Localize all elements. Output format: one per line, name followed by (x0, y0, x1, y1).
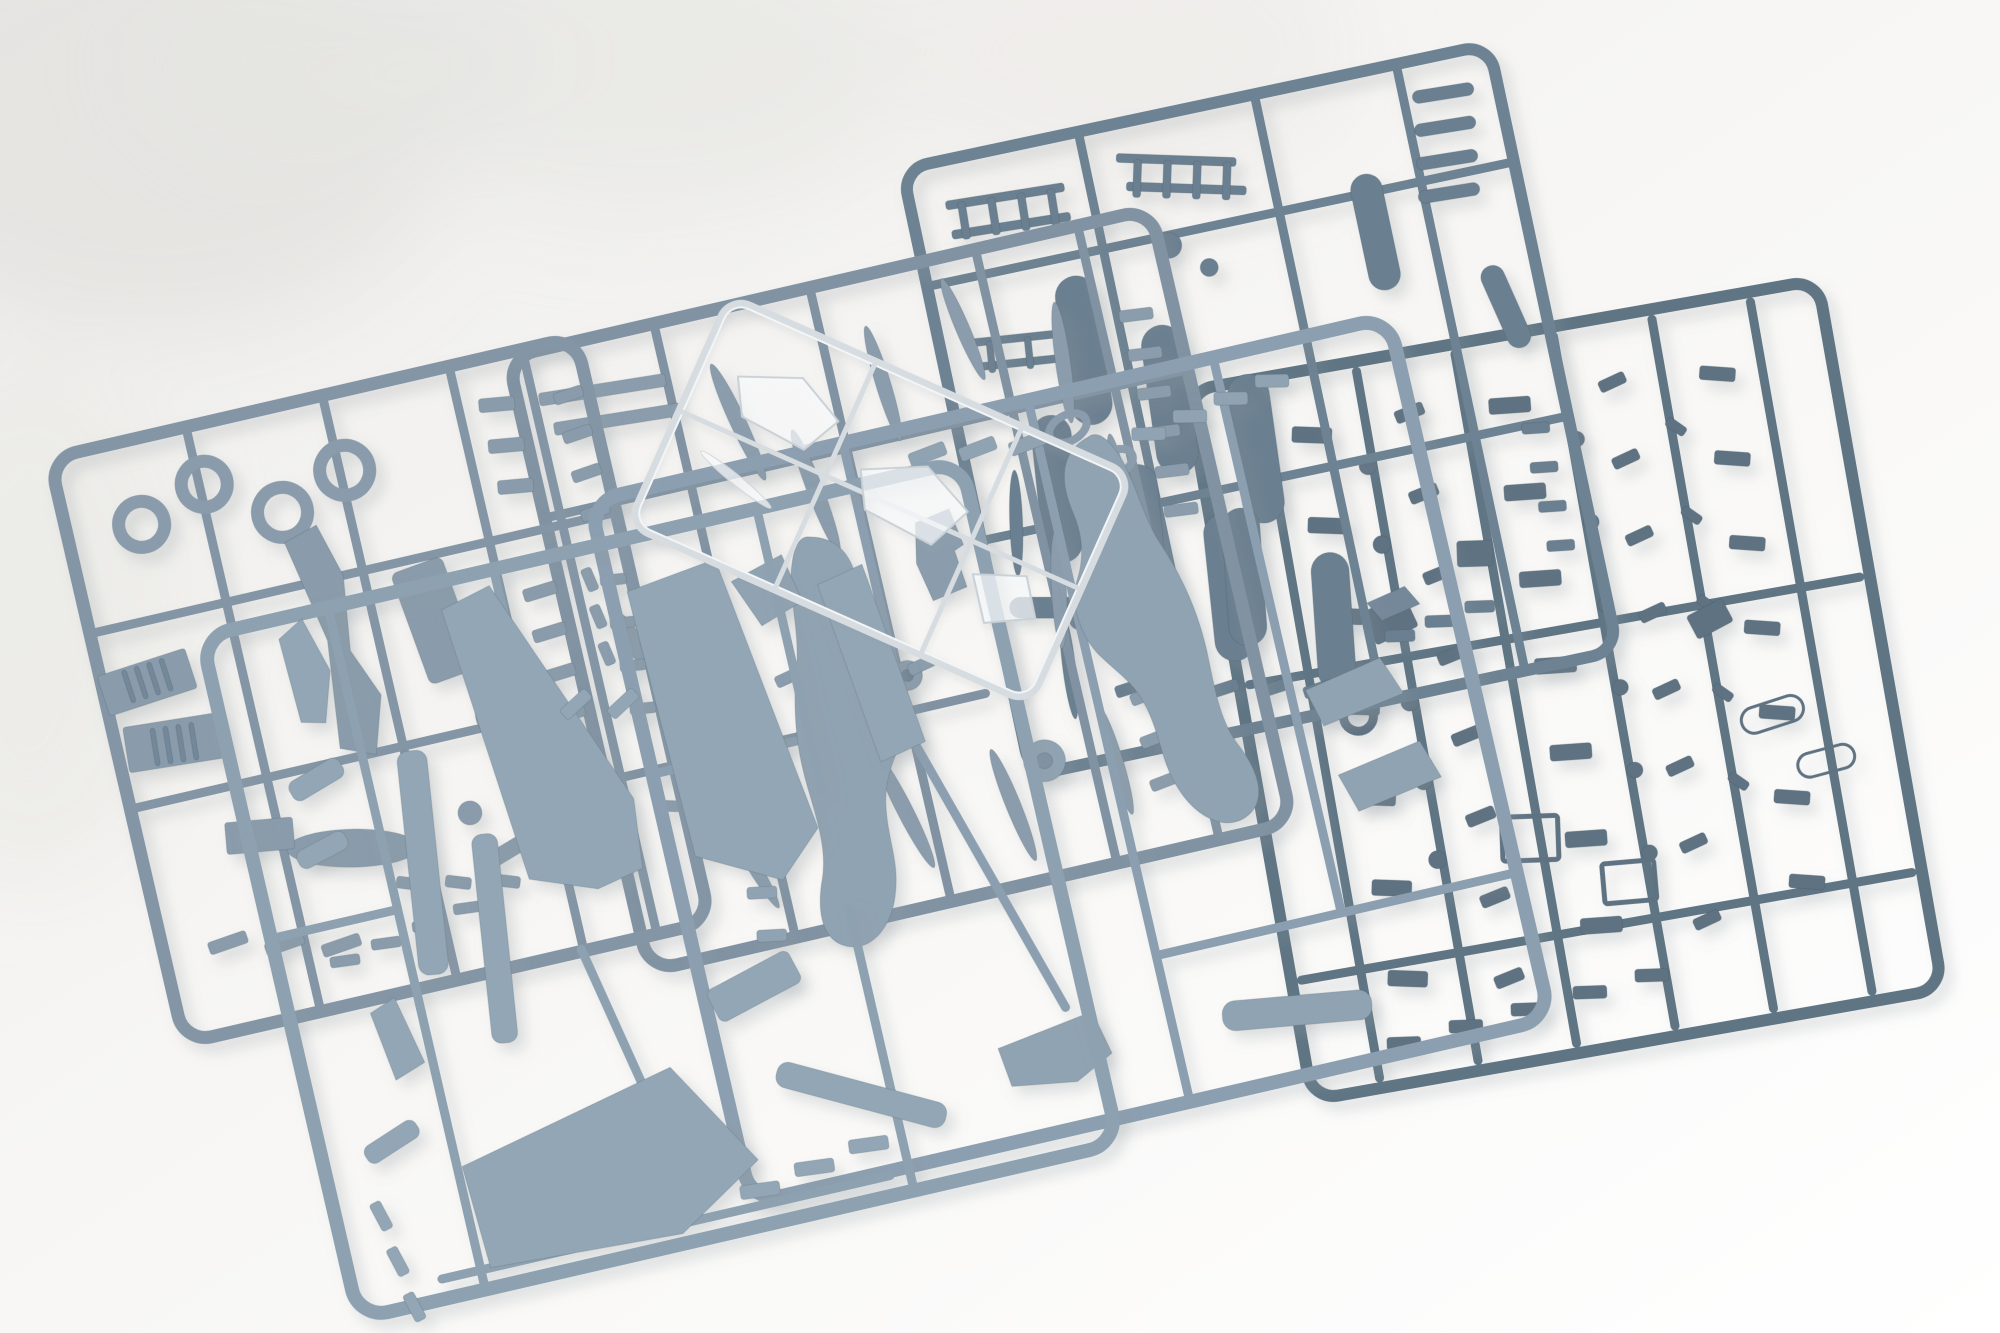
sprues-photo-svg (0, 0, 2000, 1333)
model-kit-sprues-photo (0, 0, 2000, 1333)
